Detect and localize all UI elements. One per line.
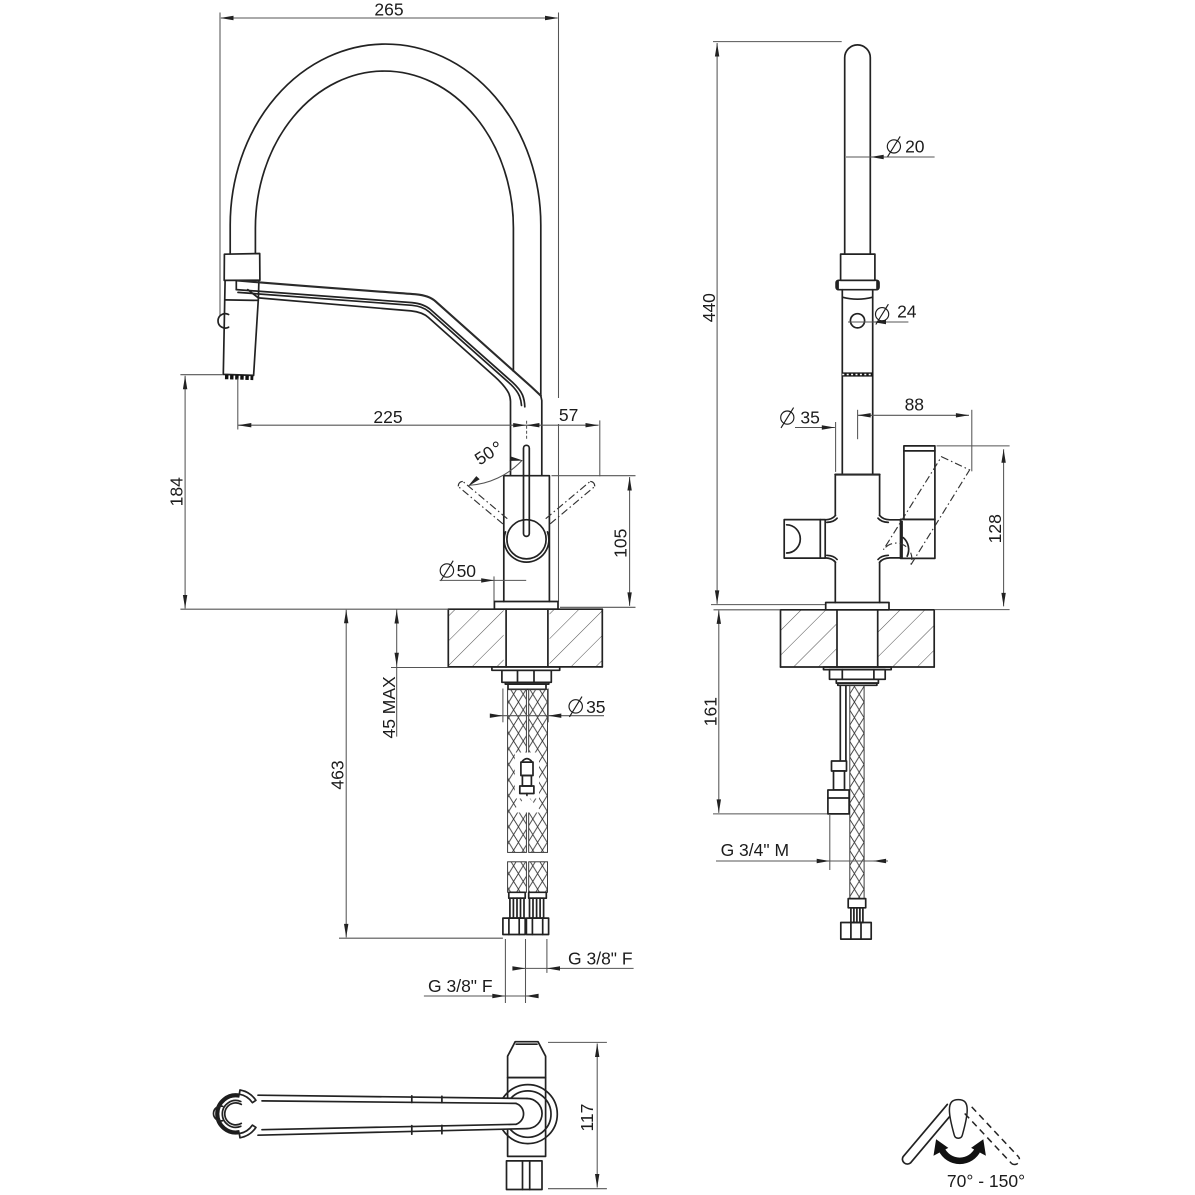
svg-text:57: 57 [559, 405, 578, 425]
svg-text:20: 20 [905, 136, 925, 156]
svg-text:70° - 150°: 70° - 150° [947, 1171, 1025, 1191]
svg-text:45 MAX: 45 MAX [379, 676, 399, 739]
svg-text:G 3/8" F: G 3/8" F [568, 949, 633, 969]
svg-text:G 3/4" M: G 3/4" M [721, 840, 789, 860]
svg-text:117: 117 [577, 1104, 597, 1132]
svg-text:265: 265 [374, 0, 403, 20]
svg-text:463: 463 [328, 760, 348, 789]
svg-text:35: 35 [800, 407, 819, 427]
svg-text:88: 88 [905, 394, 924, 414]
svg-text:184: 184 [167, 477, 187, 506]
svg-text:G 3/8" F: G 3/8" F [428, 976, 493, 996]
svg-text:105: 105 [611, 529, 631, 558]
svg-text:225: 225 [373, 407, 402, 427]
svg-text:161: 161 [701, 697, 721, 726]
svg-text:35: 35 [586, 697, 605, 717]
svg-text:24: 24 [897, 302, 917, 322]
svg-text:50: 50 [457, 561, 477, 581]
svg-text:440: 440 [699, 293, 719, 322]
svg-text:128: 128 [985, 514, 1005, 543]
